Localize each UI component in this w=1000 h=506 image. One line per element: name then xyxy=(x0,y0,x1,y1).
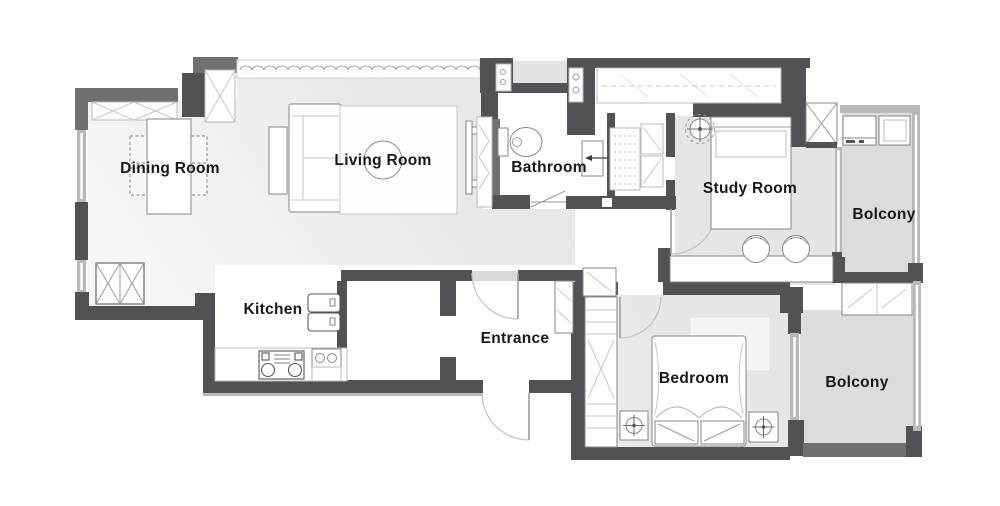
stove-icon xyxy=(259,351,304,379)
wall xyxy=(788,420,804,456)
door-threshold xyxy=(483,380,529,393)
double-bed xyxy=(652,336,746,446)
wall xyxy=(511,83,571,93)
balcony-rail xyxy=(840,105,920,113)
room-label-kitchen: Kitchen xyxy=(244,301,303,318)
wall xyxy=(663,282,790,295)
wall xyxy=(666,113,675,157)
wall xyxy=(195,293,215,320)
water-heater-shaft xyxy=(569,68,583,102)
sofa xyxy=(289,104,341,212)
wall xyxy=(803,443,908,457)
doorway-opening xyxy=(602,198,612,207)
wall xyxy=(595,58,810,68)
side-table xyxy=(269,127,287,194)
storage-cabinet xyxy=(96,263,144,304)
wall xyxy=(788,291,801,334)
study-bed xyxy=(711,117,791,229)
room-label-balcony-bottom: Bolcony xyxy=(825,374,888,391)
door-swing-arc xyxy=(482,393,529,440)
wall xyxy=(908,263,923,283)
room-label-dining: Dining Room xyxy=(120,160,220,177)
wall xyxy=(203,380,483,393)
recess-floor xyxy=(513,61,567,84)
toilet-icon xyxy=(498,128,542,157)
wall xyxy=(341,270,472,281)
floor-plan-drawing: Dining Room Living Room Bathroom Study R… xyxy=(0,0,1000,506)
wall xyxy=(575,270,583,298)
room-label-entrance: Entrance xyxy=(481,330,550,347)
kitchen-sink xyxy=(312,349,341,381)
room-label-balcony-top: Bolcony xyxy=(852,206,915,223)
door-threshold xyxy=(618,282,663,295)
kitchen-cabinets xyxy=(308,294,340,331)
wall xyxy=(833,257,845,283)
wall xyxy=(566,196,676,209)
balcony-cabinet xyxy=(842,283,912,315)
door-threshold xyxy=(530,198,566,209)
wall xyxy=(529,380,575,393)
room-label-bathroom: Bathroom xyxy=(511,159,587,176)
wall xyxy=(693,103,805,117)
linen-shelves xyxy=(641,124,663,187)
wall xyxy=(75,88,178,102)
wall-edge xyxy=(203,393,483,396)
hall-cabinet xyxy=(583,268,616,296)
room-label-study: Study Room xyxy=(703,180,797,197)
wall xyxy=(666,180,675,210)
laundry-sink xyxy=(879,116,910,145)
wall xyxy=(658,248,671,285)
wall xyxy=(492,195,530,209)
wall xyxy=(573,447,790,460)
wall xyxy=(518,270,575,281)
bedroom-wardrobe xyxy=(585,297,617,447)
washing-machine xyxy=(843,116,876,145)
door-threshold xyxy=(472,271,518,281)
hanging-rail-closet xyxy=(610,128,640,190)
pipe-shaft xyxy=(496,64,511,91)
wall xyxy=(75,202,88,260)
doorway-opening xyxy=(666,157,675,180)
nightstand-left xyxy=(620,411,648,440)
tv-wall-cabinet xyxy=(477,117,492,207)
wall xyxy=(76,306,215,320)
utility-shaft xyxy=(806,103,837,148)
wall xyxy=(481,93,498,119)
nightstand-right xyxy=(749,412,778,442)
entry-closet xyxy=(205,70,235,122)
study-closet xyxy=(597,68,781,103)
floor-plan: Dining Room Living Room Bathroom Study R… xyxy=(0,0,1000,506)
dining-closet xyxy=(92,102,177,120)
room-label-bedroom: Bedroom xyxy=(659,370,729,387)
wall xyxy=(440,281,456,316)
shoe-cabinet xyxy=(555,281,573,333)
wall xyxy=(75,88,88,130)
room-label-living: Living Room xyxy=(334,152,431,169)
